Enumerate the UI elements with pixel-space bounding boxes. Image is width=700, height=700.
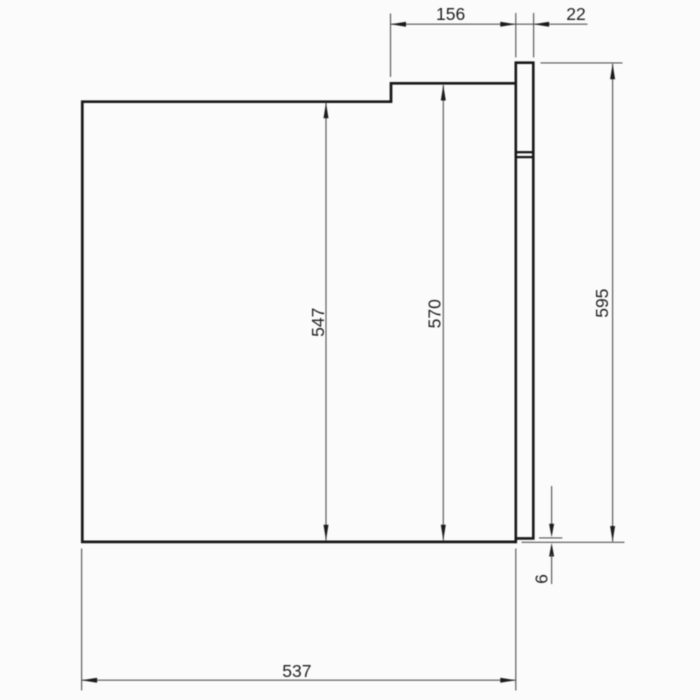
- svg-text:570: 570: [425, 299, 445, 328]
- svg-text:22: 22: [566, 4, 585, 24]
- svg-text:547: 547: [308, 308, 328, 337]
- svg-text:595: 595: [592, 289, 612, 318]
- svg-text:6: 6: [531, 574, 551, 584]
- svg-text:156: 156: [436, 4, 465, 24]
- svg-text:537: 537: [282, 661, 311, 681]
